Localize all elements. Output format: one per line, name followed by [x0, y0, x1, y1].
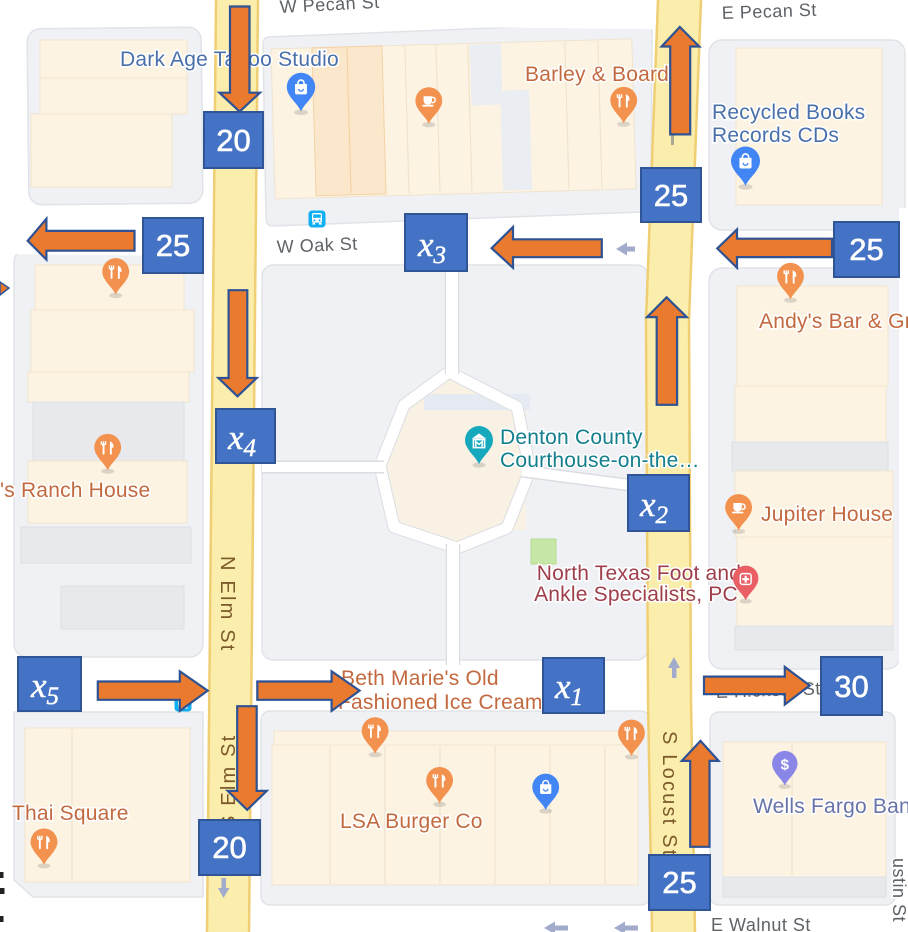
svg-text:Courthouse-on-the…: Courthouse-on-the…	[500, 449, 700, 472]
svg-text:25: 25	[156, 228, 190, 263]
svg-text:Fashioned Ice Cream: Fashioned Ice Cream	[338, 691, 543, 714]
svg-text:Recycled Books: Recycled Books	[712, 101, 865, 124]
svg-text:25: 25	[654, 178, 688, 213]
svg-text:Andy's Bar & Grill: Andy's Bar & Grill	[759, 310, 908, 333]
svg-text:Barley & Board: Barley & Board	[525, 63, 669, 86]
svg-text:Jupiter House: Jupiter House	[761, 503, 893, 526]
svg-text:North Texas Foot and: North Texas Foot and	[537, 562, 741, 585]
svg-text:ustin St: ustin St	[889, 858, 908, 922]
svg-text:LSA Burger Co: LSA Burger Co	[340, 810, 483, 833]
svg-text:E Walnut St: E Walnut St	[711, 915, 811, 932]
svg-text:N Elm St: N Elm St	[216, 556, 238, 653]
svg-text:S Locust St: S Locust St	[658, 731, 680, 857]
svg-text:Beth Marie's Old: Beth Marie's Old	[341, 667, 499, 690]
svg-text:20: 20	[212, 830, 246, 865]
svg-text:20: 20	[216, 123, 250, 158]
svg-text:E Pecan St: E Pecan St	[721, 0, 817, 23]
svg-text:Ankle Specialists, PC: Ankle Specialists, PC	[534, 583, 738, 606]
svg-text:'s Ranch House: 's Ranch House	[0, 479, 150, 502]
svg-text:Wells Fargo Bank: Wells Fargo Bank	[753, 795, 908, 818]
svg-text:25: 25	[849, 232, 883, 267]
svg-text:Records CDs: Records CDs	[712, 124, 839, 147]
svg-text:Thai Square: Thai Square	[12, 802, 129, 825]
svg-text:W Oak St: W Oak St	[276, 233, 358, 257]
svg-text:Denton County: Denton County	[500, 426, 643, 449]
svg-text:30: 30	[834, 669, 868, 704]
svg-text:25: 25	[662, 865, 696, 900]
